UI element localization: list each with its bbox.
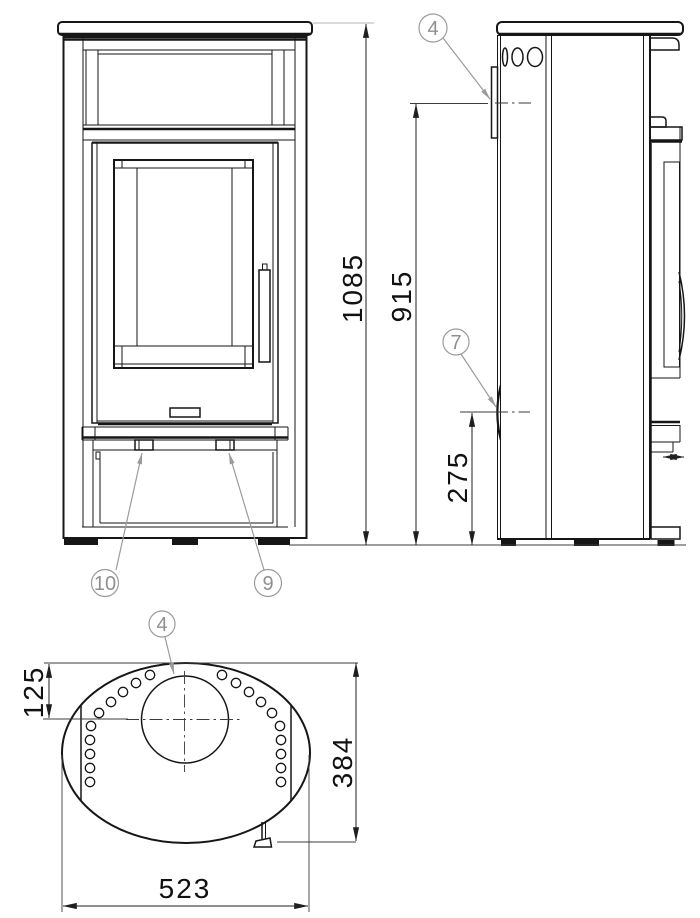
side-view [492,22,685,546]
door-vent [170,408,200,417]
stove-drawing: 1085 915 275 125 384 523 4 [0,0,700,918]
dim-label-rear-port-height: 275 [442,451,473,504]
dim-label-flue-height: 915 [386,270,417,323]
dim-label-width: 523 [159,873,212,904]
callouts: 4 7 10 9 4 [92,14,497,674]
dimension-lines: 1085 915 275 125 384 523 [18,23,686,912]
ash-latch-hook [96,452,100,459]
front-shelf-band [83,125,295,143]
front-top-plate [58,22,312,35]
dim-label-overall-height: 1085 [337,253,368,323]
callout-label-front-right: 9 [262,573,273,595]
side-top-vents [503,48,543,67]
dim-flue-offset: 125 [18,664,49,718]
latch-left [135,440,153,450]
callout-label-side-flue: 4 [427,18,438,40]
door-window [114,160,253,368]
dim-depth: 384 [327,663,358,841]
front-lower-band [82,427,288,440]
front-upper-compartment [86,50,284,125]
top-centerlines [126,671,242,772]
latch-right [216,440,234,450]
side-front-brackets [650,38,682,142]
callout-side-flue: 4 [419,14,490,99]
side-door [651,127,685,527]
dim-label-flue-offset: 125 [18,666,49,719]
dim-width: 523 [63,873,308,906]
rear-flue-tab [492,67,498,138]
top-view [62,663,310,847]
callout-front-left: 10 [92,453,143,597]
front-view [58,22,312,545]
front-latch-strip [93,440,277,450]
dim-overall-height: 1085 [337,24,368,545]
callout-label-front-left: 10 [94,573,116,595]
technical-drawing-page: 1085 915 275 125 384 523 4 [0,0,700,918]
top-handle [254,822,272,847]
top-plate-outline [62,663,310,843]
vent-holes [85,670,285,786]
front-ash-panel [82,440,288,527]
dim-label-depth: 384 [327,736,358,789]
callout-front-right: 9 [229,453,282,597]
side-body [497,35,650,539]
dim-rear-port-height: 275 [442,413,473,545]
side-top-plate [497,22,683,35]
callout-rear-port: 7 [443,329,496,407]
side-plinth-feet [501,527,680,546]
front-door [92,143,278,424]
dim-flue-height: 915 [386,104,417,545]
callout-label-top-flue: 4 [156,614,167,636]
door-handle [259,264,270,362]
callout-label-rear-port: 7 [450,332,461,354]
